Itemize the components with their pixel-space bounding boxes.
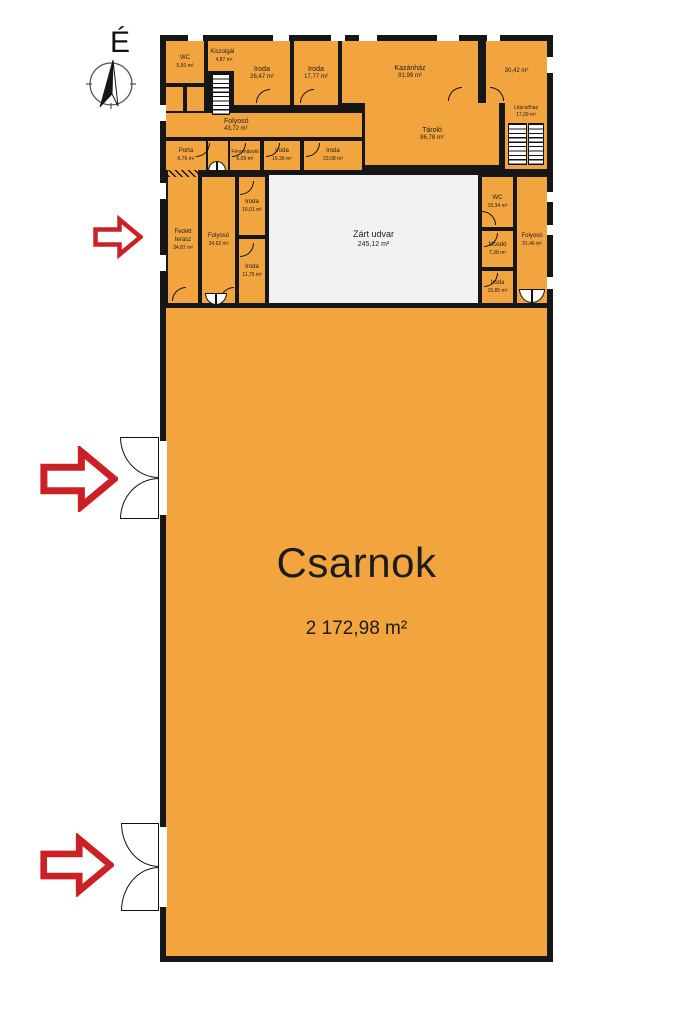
room-area: 6,76 m² xyxy=(178,156,195,163)
room-tarolo: Tároló 86,78 m² xyxy=(365,103,499,165)
room-lepcsohaz: Lépcsőház 17,09 m² xyxy=(505,103,547,169)
room-folyoso-mid: Folyosó 34,62 m² xyxy=(202,177,235,303)
room-name: Iroda xyxy=(326,148,340,156)
hatch-area xyxy=(168,170,198,177)
room-area: 23,08 m² xyxy=(323,156,343,163)
window-slot xyxy=(273,35,289,41)
door-panel xyxy=(519,289,532,303)
double-door-icon xyxy=(120,437,159,519)
door-panel xyxy=(217,161,226,171)
room-area: 26,47 m² xyxy=(250,74,274,82)
window-slot xyxy=(359,35,377,41)
door-panel xyxy=(205,293,216,305)
wall-opening xyxy=(159,441,167,515)
room-area: 5,50 m² xyxy=(177,63,194,70)
room-area: 86,78 m² xyxy=(420,135,444,143)
room-name: Fedett terasz xyxy=(168,229,198,245)
room-area: 31,46 m² xyxy=(522,241,542,248)
room-area: 4,87 m² xyxy=(216,57,233,64)
room-name: WC xyxy=(493,195,503,203)
room-zart-udvar: Zárt udvar 245,12 m² xyxy=(269,175,478,303)
window-slot xyxy=(547,277,553,289)
north-label: É xyxy=(98,26,142,60)
door-panel xyxy=(121,867,159,911)
room-name: WC xyxy=(180,55,190,63)
room-cell-2 xyxy=(187,87,204,111)
room-area: 15,34 m² xyxy=(488,203,508,210)
room-area: 30,42 m² xyxy=(505,68,529,76)
room-area: 6,09 m² xyxy=(237,156,254,163)
wall-opening xyxy=(159,827,167,907)
room-name: Kazánház xyxy=(394,64,425,73)
room-folyoso-right: Folyosó 31,46 m² xyxy=(517,177,547,303)
window-slot xyxy=(547,57,553,73)
room-area: 16,01 m² xyxy=(242,207,262,214)
room-area: 34,87 m² xyxy=(173,245,193,252)
room-name: Tároló xyxy=(422,126,442,135)
room-name: Folyosó xyxy=(521,233,542,241)
room-name: Iroda xyxy=(245,264,259,272)
window-slot xyxy=(487,35,500,41)
room-name: Porta xyxy=(179,148,193,156)
entrance-arrow-icon xyxy=(93,211,143,263)
room-area: 245,12 m² xyxy=(358,240,390,249)
building-outline: WC 5,50 m² Kiszolgáló 4,87 m² Iroda 26,4… xyxy=(160,35,553,962)
door-panel xyxy=(532,289,545,303)
window-slot xyxy=(437,35,459,41)
room-name: Folyosó xyxy=(208,233,229,241)
room-name: Folyosó xyxy=(224,117,249,126)
room-area: 43,72 m² xyxy=(224,126,248,134)
room-area: 16,36 m² xyxy=(272,156,292,163)
room-area: 17,77 m² xyxy=(304,74,328,82)
double-door-icon xyxy=(208,161,226,171)
room-area: 11,75 m² xyxy=(242,272,261,279)
double-door-icon xyxy=(519,289,545,303)
room-name: Zárt udvar xyxy=(353,229,394,241)
room-area: 91,99 m² xyxy=(398,73,422,81)
window-slot xyxy=(331,35,345,41)
compass-icon xyxy=(84,56,138,110)
window-slot xyxy=(188,35,203,41)
window-slot xyxy=(160,255,166,271)
floor-plan-canvas: É WC 5,50 m² Kiszolgáló 4,87 m² Iroda 26… xyxy=(0,0,687,1024)
room-area: 34,62 m² xyxy=(209,241,229,248)
room-name: Iroda xyxy=(254,65,270,74)
window-slot xyxy=(547,192,553,202)
room-name: Iroda xyxy=(308,65,324,74)
room-area: 17,09 m² xyxy=(516,112,536,119)
hall-area: 2 172,98 m² xyxy=(306,617,407,642)
entrance-arrow-icon xyxy=(40,446,118,512)
entrance-arrow-icon xyxy=(40,833,114,897)
stairs-icon xyxy=(508,123,527,165)
room-folyoso-top: Folyosó 43,72 m² xyxy=(166,113,362,137)
room-cell-1 xyxy=(166,87,183,111)
double-door-icon xyxy=(205,293,227,305)
room-area: 7,38 m² xyxy=(489,250,506,257)
door-panel xyxy=(208,161,217,171)
hall-name: Csarnok xyxy=(277,536,437,591)
stairs-icon xyxy=(528,123,544,165)
room-fedett-terasz: Fedett terasz 34,87 m² xyxy=(168,177,198,303)
room-iroda-1777: Iroda 17,77 m² xyxy=(294,41,338,105)
door-panel xyxy=(216,293,227,305)
room-name: Iroda xyxy=(245,199,259,207)
hall-label-block: Csarnok 2 172,98 m² xyxy=(277,536,437,641)
stairs-icon xyxy=(212,73,230,115)
double-door-icon xyxy=(121,823,159,911)
door-panel xyxy=(120,437,159,478)
window-slot xyxy=(160,183,166,199)
room-wc-top: WC 5,50 m² xyxy=(166,41,204,83)
window-slot xyxy=(547,225,553,235)
room-csarnok: Csarnok 2 172,98 m² xyxy=(166,308,547,956)
door-panel xyxy=(121,823,159,867)
door-panel xyxy=(120,478,159,519)
room-area: 15,85 m² xyxy=(488,288,508,295)
window-slot xyxy=(160,105,166,121)
